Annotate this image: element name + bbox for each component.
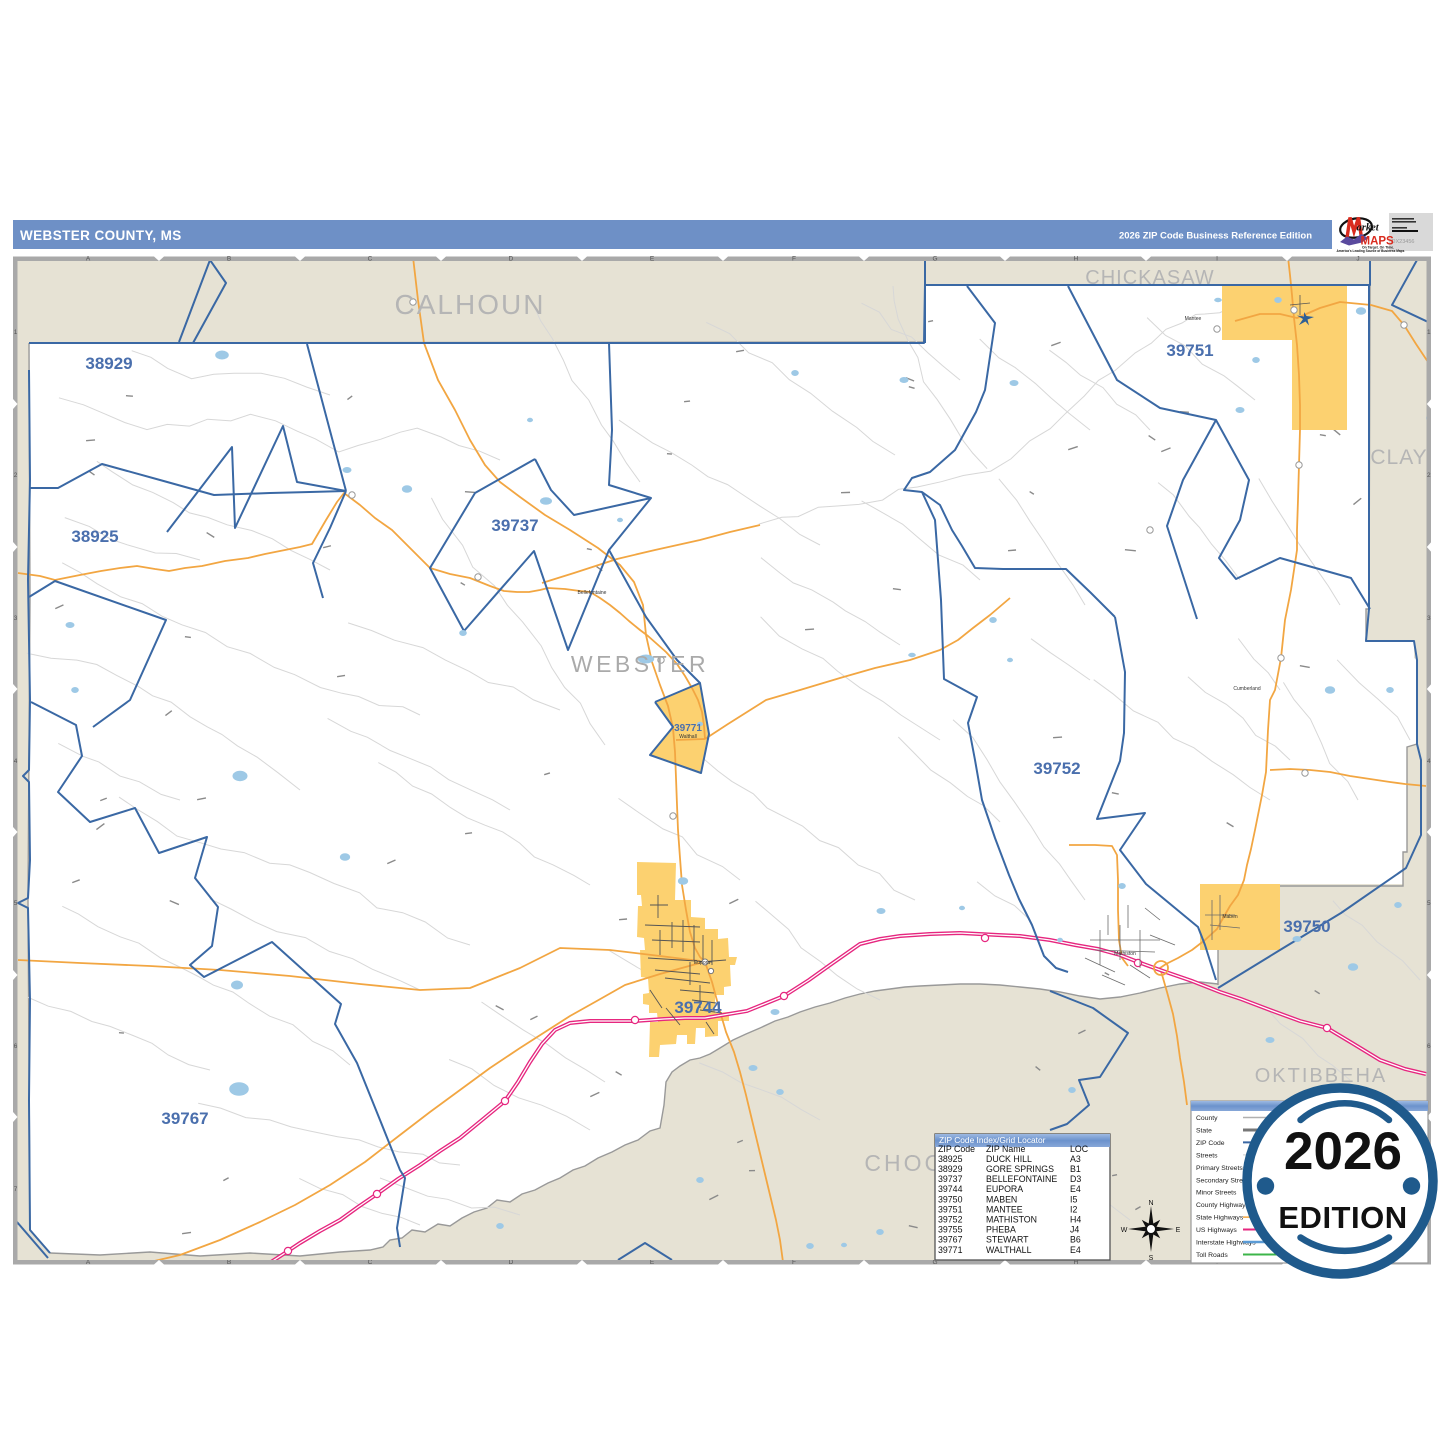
svg-text:38925: 38925: [938, 1154, 963, 1164]
svg-text:B6: B6: [1070, 1235, 1081, 1245]
svg-text:39752: 39752: [938, 1215, 963, 1225]
svg-text:Maben: Maben: [1222, 914, 1238, 920]
svg-text:W: W: [1121, 1227, 1128, 1234]
svg-text:7: 7: [14, 1186, 18, 1193]
svg-text:ZIP Code: ZIP Code: [938, 1144, 975, 1154]
svg-text:MABEN: MABEN: [986, 1194, 1017, 1204]
svg-text:STEWART: STEWART: [986, 1235, 1029, 1245]
svg-text:38929: 38929: [938, 1164, 963, 1174]
svg-text:B1: B1: [1070, 1164, 1081, 1174]
svg-text:1: 1: [14, 329, 18, 336]
svg-text:2: 2: [14, 472, 18, 479]
svg-text:6: 6: [1427, 1043, 1431, 1050]
svg-text:39744: 39744: [938, 1184, 963, 1194]
svg-text:I5: I5: [1070, 1194, 1077, 1204]
svg-text:CALHOUN: CALHOUN: [395, 289, 546, 320]
svg-text:OKTIBBEHA: OKTIBBEHA: [1255, 1065, 1387, 1087]
svg-text:H4: H4: [1070, 1215, 1081, 1225]
svg-text:I2: I2: [1070, 1204, 1077, 1214]
svg-text:E: E: [650, 1259, 655, 1266]
svg-text:Mantee: Mantee: [1185, 316, 1202, 322]
svg-text:US Highways: US Highways: [1196, 1227, 1237, 1234]
svg-text:E4: E4: [1070, 1184, 1081, 1194]
svg-text:39767: 39767: [161, 1109, 208, 1128]
svg-text:LOC: LOC: [1070, 1144, 1089, 1154]
svg-text:39755: 39755: [938, 1225, 963, 1235]
svg-text:EUPORA: EUPORA: [986, 1184, 1023, 1194]
svg-text:4: 4: [14, 758, 18, 765]
svg-text:4: 4: [1427, 758, 1431, 765]
svg-text:Cumberland: Cumberland: [1233, 686, 1260, 692]
svg-text:WALTHALL: WALTHALL: [986, 1245, 1032, 1255]
svg-text:CLAY: CLAY: [1370, 446, 1427, 469]
svg-text:ZIP Name: ZIP Name: [986, 1144, 1026, 1154]
svg-text:A: A: [86, 1259, 91, 1266]
svg-text:WEBSTER: WEBSTER: [571, 651, 709, 677]
svg-text:County: County: [1196, 1115, 1218, 1122]
svg-text:39751: 39751: [1166, 341, 1213, 360]
svg-text:39750: 39750: [938, 1194, 963, 1204]
svg-text:CHICKASAW: CHICKASAW: [1085, 267, 1214, 289]
svg-text:J4: J4: [1070, 1225, 1079, 1235]
svg-text:B: B: [227, 1259, 231, 1266]
svg-text:arket: arket: [1357, 223, 1380, 234]
svg-text:DUCK HILL: DUCK HILL: [986, 1154, 1032, 1164]
svg-text:F: F: [792, 1259, 796, 1266]
svg-text:E4: E4: [1070, 1245, 1081, 1255]
svg-text:39744: 39744: [674, 998, 722, 1017]
svg-text:BELLEFONTAINE: BELLEFONTAINE: [986, 1174, 1057, 1184]
svg-text:State Highways: State Highways: [1196, 1215, 1244, 1222]
svg-text:5: 5: [1427, 900, 1431, 907]
svg-text:DX23456: DX23456: [1392, 239, 1415, 245]
svg-text:39737: 39737: [938, 1174, 963, 1184]
svg-text:C: C: [368, 1259, 373, 1266]
svg-text:Eupora: Eupora: [694, 960, 710, 966]
svg-text:E: E: [1176, 1227, 1181, 1234]
svg-text:EDITION: EDITION: [1278, 1200, 1407, 1235]
svg-text:State: State: [1196, 1127, 1212, 1134]
svg-text:Bellefontaine: Bellefontaine: [578, 590, 607, 596]
svg-text:America's Leading Source of B: America's Leading Source of Business Map…: [1337, 249, 1405, 253]
svg-text:39737: 39737: [491, 516, 538, 535]
svg-text:D: D: [509, 1259, 514, 1266]
svg-text:S: S: [1149, 1255, 1154, 1262]
svg-text:D3: D3: [1070, 1174, 1081, 1184]
svg-text:MANTEE: MANTEE: [986, 1204, 1023, 1214]
svg-text:39750: 39750: [1283, 917, 1330, 936]
svg-text:2: 2: [1427, 472, 1431, 479]
svg-text:3: 3: [1427, 615, 1431, 622]
svg-text:39771: 39771: [938, 1245, 963, 1255]
svg-text:39767: 39767: [938, 1235, 963, 1245]
svg-text:38929: 38929: [85, 354, 132, 373]
svg-text:A3: A3: [1070, 1154, 1081, 1164]
svg-text:39751: 39751: [938, 1204, 963, 1214]
svg-text:N: N: [1148, 1200, 1153, 1207]
svg-text:6: 6: [14, 1043, 18, 1050]
svg-text:Mathiston: Mathiston: [1114, 951, 1136, 957]
svg-text:38925: 38925: [71, 527, 118, 546]
svg-text:Walthall: Walthall: [679, 734, 697, 740]
svg-text:3: 3: [14, 615, 18, 622]
svg-text:5: 5: [14, 900, 18, 907]
svg-text:39771: 39771: [674, 723, 702, 734]
svg-text:2026: 2026: [1284, 1122, 1402, 1181]
svg-text:2026 ZIP Code Business Referen: 2026 ZIP Code Business Reference Edition: [1119, 231, 1312, 242]
svg-text:Primary Streets: Primary Streets: [1196, 1165, 1243, 1172]
svg-text:PHEBA: PHEBA: [986, 1225, 1016, 1235]
svg-text:MATHISTON: MATHISTON: [986, 1215, 1037, 1225]
svg-text:GORE SPRINGS: GORE SPRINGS: [986, 1164, 1054, 1174]
svg-text:Toll Roads: Toll Roads: [1196, 1252, 1228, 1259]
svg-text:Streets: Streets: [1196, 1152, 1218, 1159]
svg-text:39752: 39752: [1033, 759, 1080, 778]
svg-text:ZIP Code: ZIP Code: [1196, 1140, 1225, 1147]
svg-text:Minor Streets: Minor Streets: [1196, 1190, 1237, 1197]
svg-text:WEBSTER COUNTY, MS: WEBSTER COUNTY, MS: [20, 228, 182, 243]
svg-text:County Highways: County Highways: [1196, 1202, 1249, 1209]
svg-text:1: 1: [1427, 329, 1431, 336]
